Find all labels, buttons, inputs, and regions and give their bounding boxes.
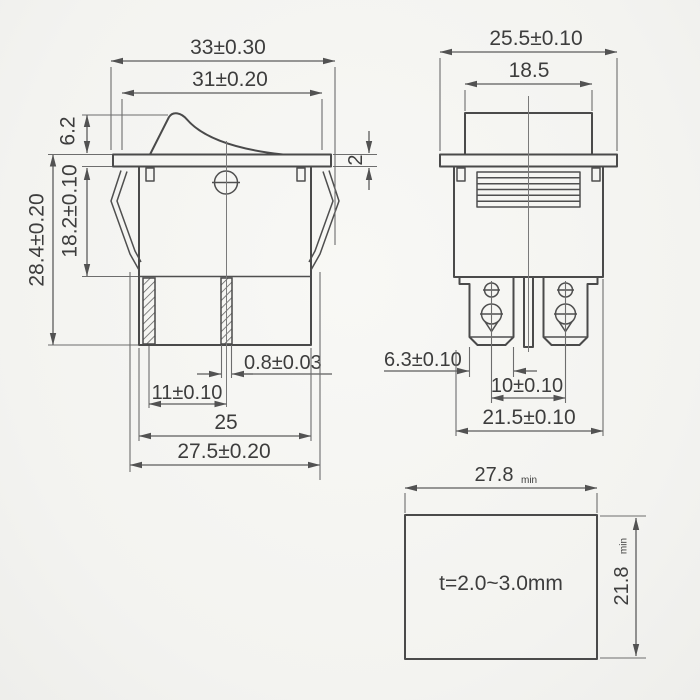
- clip-notch-right: [297, 168, 305, 181]
- dim-terminal-thickness: 0.8±0.03: [197, 345, 332, 378]
- side-dimensions: 25.5±0.10 18.5 6.3±0.10: [384, 27, 617, 436]
- dim-front-rocker-width-label: 31±0.20: [192, 68, 268, 91]
- dim-cutout-width-suffix: min: [521, 475, 537, 486]
- mounting-clip-left: [111, 171, 141, 271]
- clip-notch-left: [146, 168, 154, 181]
- dim-front-terminal-pitch: 11±0.10: [149, 382, 227, 404]
- dim-cutout-height: 21.8 min: [600, 516, 646, 658]
- dim-cutout-height-suffix: min: [619, 538, 630, 554]
- dim-base-width-label: 25: [214, 411, 237, 434]
- dim-overall-height: 28.4±0.20: [26, 155, 139, 346]
- dim-side-flange-width-label: 25.5±0.10: [489, 27, 582, 50]
- dim-front-rocker-width: 31±0.20: [122, 68, 322, 150]
- dim-rocker-height-label: 6.2: [57, 116, 80, 145]
- dim-terminal-width-label: 6.3±0.10: [384, 349, 462, 371]
- terminal-right-holes: [554, 281, 577, 348]
- technical-drawing: 33±0.30 31±0.20 6.2 18.2±0.10: [0, 0, 700, 700]
- dim-side-body-width-label: 21.5±0.10: [482, 406, 575, 429]
- terminal-blade-left: [460, 277, 514, 345]
- dim-terminal-thickness-label: 0.8±0.03: [244, 352, 322, 374]
- front-flange: [113, 155, 331, 167]
- panel-thickness-note: t=2.0~3.0mm: [439, 572, 563, 595]
- dim-overall-height-label: 28.4±0.20: [26, 193, 49, 286]
- dim-flange-thickness: 2: [333, 131, 377, 190]
- panel-cutout-view: t=2.0~3.0mm 27.8 min 21.8 min: [405, 464, 646, 659]
- rocker-profile: [150, 113, 283, 154]
- front-view: 33±0.30 31±0.20 6.2 18.2±0.10: [26, 36, 378, 480]
- dim-side-terminal-pitch-label: 10±0.10: [491, 375, 563, 397]
- side-clip-notch-left: [457, 168, 465, 181]
- dim-cutout-height-label: 21.8: [611, 567, 633, 606]
- dim-rocker-height: 6.2: [57, 115, 169, 153]
- terminal-blade-right: [544, 277, 598, 345]
- dim-side-body-width: 21.5±0.10: [456, 279, 603, 436]
- side-view: 25.5±0.10 18.5 6.3±0.10: [384, 27, 617, 436]
- dim-front-terminal-pitch-label: 11±0.10: [152, 382, 223, 404]
- dim-flange-thickness-label: 2: [345, 154, 367, 165]
- dim-terminal-width: 6.3±0.10: [384, 347, 537, 377]
- dim-cutout-width: 27.8 min: [405, 464, 597, 513]
- dim-side-rocker-width-label: 18.5: [509, 59, 550, 82]
- dim-body-height-label: 18.2±0.10: [59, 164, 82, 257]
- front-dimensions: 33±0.30 31±0.20 6.2 18.2±0.10: [26, 36, 378, 480]
- dim-body-height: 18.2±0.10: [59, 164, 139, 276]
- front-terminal-left: [143, 278, 155, 344]
- terminal-left-holes: [480, 281, 503, 348]
- dim-side-terminal-pitch: 10±0.10: [491, 348, 566, 403]
- dim-front-body-width-label: 27.5±0.20: [177, 440, 270, 463]
- front-view-outline: [111, 113, 339, 345]
- side-clip-notch-right: [592, 168, 600, 181]
- dim-front-total-width-label: 33±0.30: [190, 36, 266, 59]
- dim-cutout-width-label: 27.8: [475, 464, 514, 486]
